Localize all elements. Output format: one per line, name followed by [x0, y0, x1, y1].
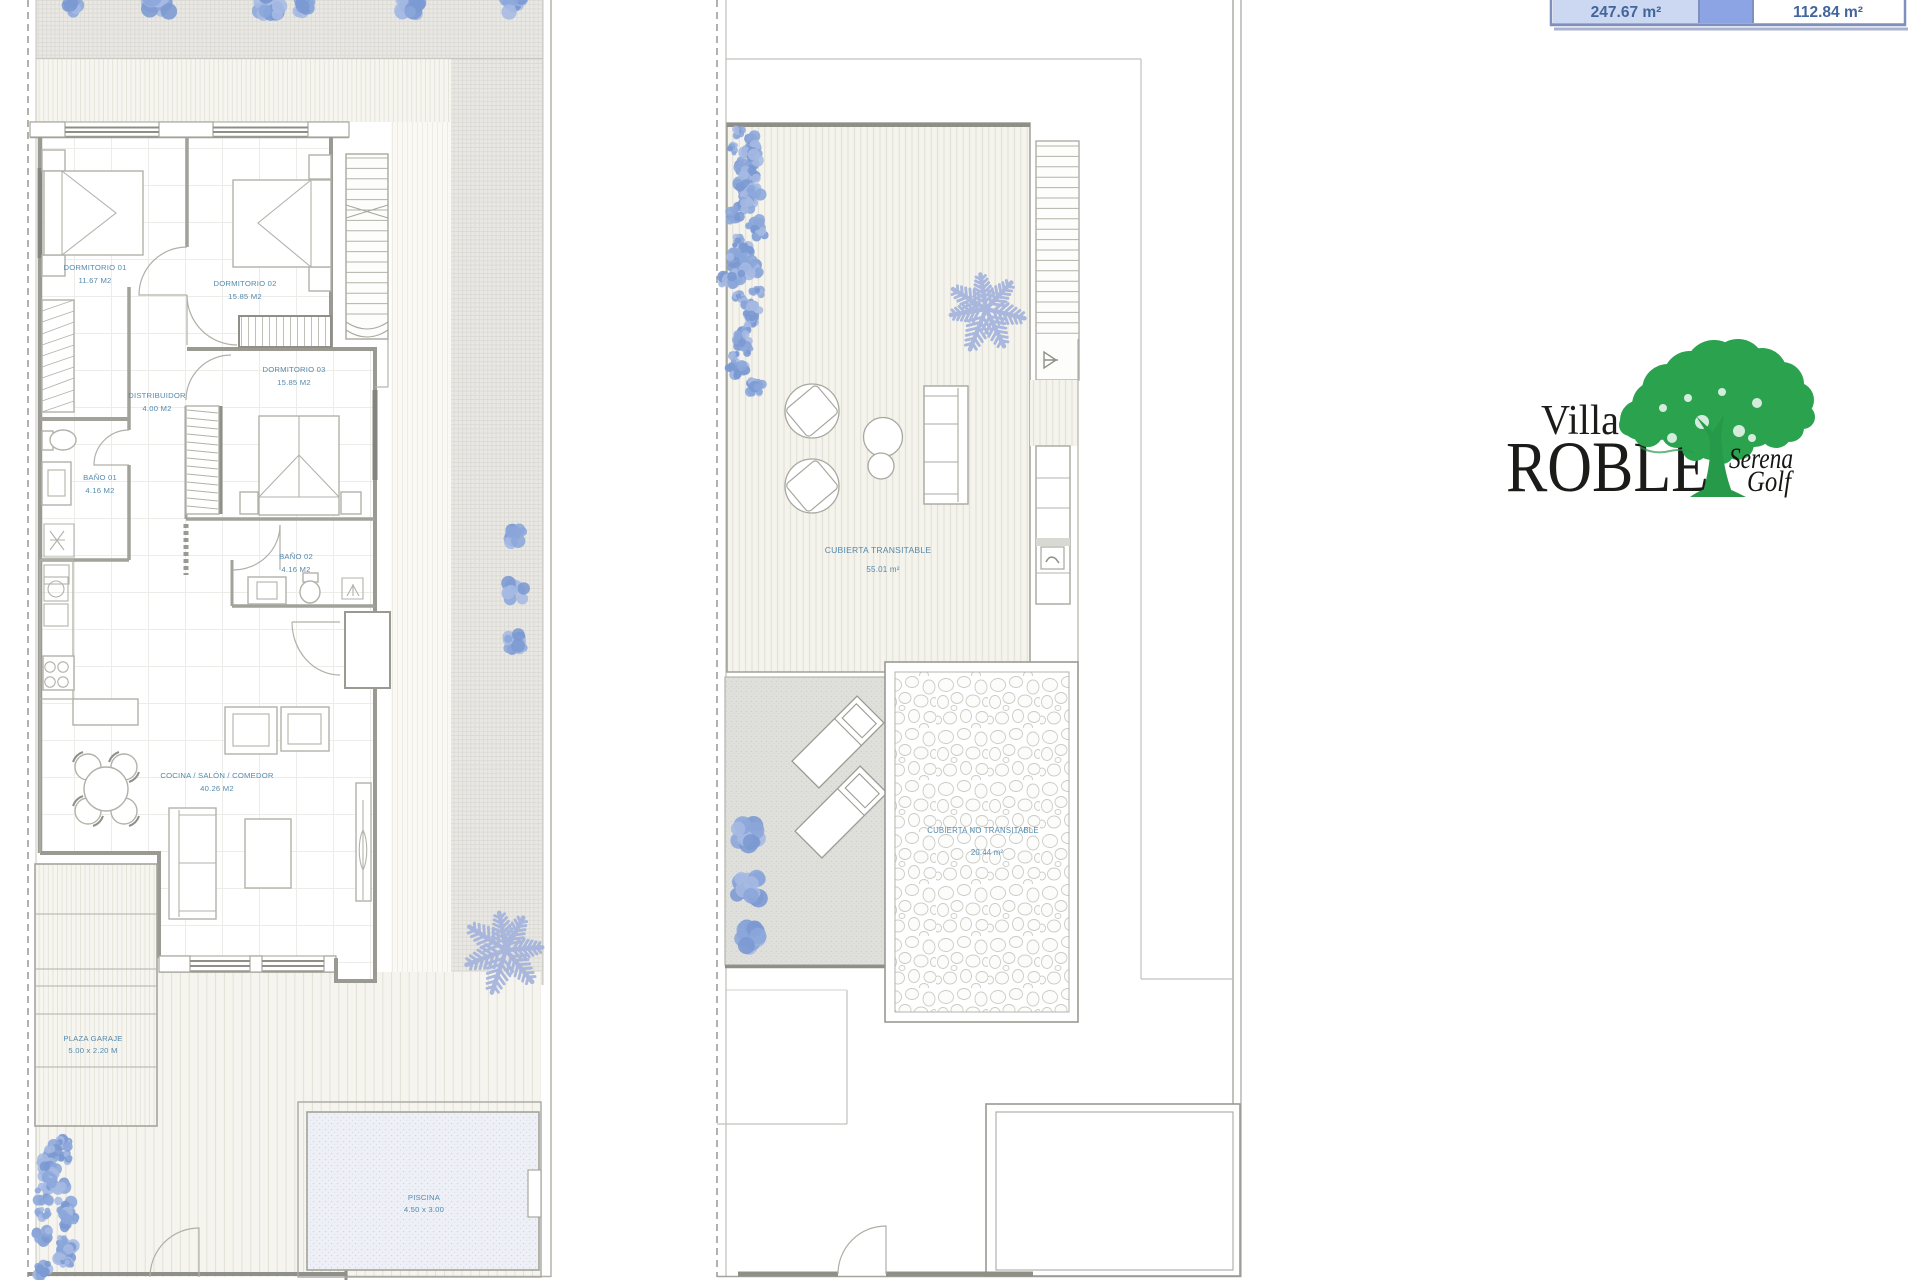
svg-text:PLAZA GARAJE: PLAZA GARAJE: [63, 1034, 122, 1043]
svg-text:247.67 m²: 247.67 m²: [1591, 4, 1662, 21]
svg-text:4.50 x 3.00: 4.50 x 3.00: [404, 1205, 444, 1214]
svg-text:20.44 m²: 20.44 m²: [971, 848, 1004, 857]
svg-text:4.16 M2: 4.16 M2: [281, 565, 310, 574]
svg-text:BAÑO 01: BAÑO 01: [83, 473, 117, 482]
svg-text:15.85 M2: 15.85 M2: [228, 292, 262, 301]
svg-text:DORMITORIO 02: DORMITORIO 02: [213, 279, 276, 288]
svg-text:40.26 M2: 40.26 M2: [200, 784, 234, 793]
svg-text:Villa: Villa: [1541, 398, 1619, 444]
svg-text:DORMITORIO 01: DORMITORIO 01: [63, 263, 126, 272]
svg-text:15.85 M2: 15.85 M2: [277, 378, 311, 387]
svg-text:5.00 x 2.20 M: 5.00 x 2.20 M: [68, 1046, 117, 1055]
svg-text:112.84 m²: 112.84 m²: [1793, 4, 1863, 21]
svg-text:CUBIERTA NO TRANSITABLE: CUBIERTA NO TRANSITABLE: [927, 826, 1038, 835]
svg-text:DORMITORIO 03: DORMITORIO 03: [262, 365, 325, 374]
svg-text:COCINA / SALÓN / COMEDOR: COCINA / SALÓN / COMEDOR: [160, 771, 274, 780]
svg-text:4.00 M2: 4.00 M2: [142, 404, 171, 413]
svg-text:55.01 m²: 55.01 m²: [866, 565, 899, 574]
svg-text:DISTRIBUIDOR: DISTRIBUIDOR: [128, 391, 186, 400]
svg-text:Golf: Golf: [1747, 465, 1794, 498]
svg-text:PISCINA: PISCINA: [408, 1193, 441, 1202]
svg-text:11.67 M2: 11.67 M2: [78, 276, 111, 285]
svg-text:4.16 M2: 4.16 M2: [85, 486, 114, 495]
svg-text:BAÑO 02: BAÑO 02: [279, 552, 313, 561]
svg-text:CUBIERTA TRANSITABLE: CUBIERTA TRANSITABLE: [825, 545, 932, 555]
